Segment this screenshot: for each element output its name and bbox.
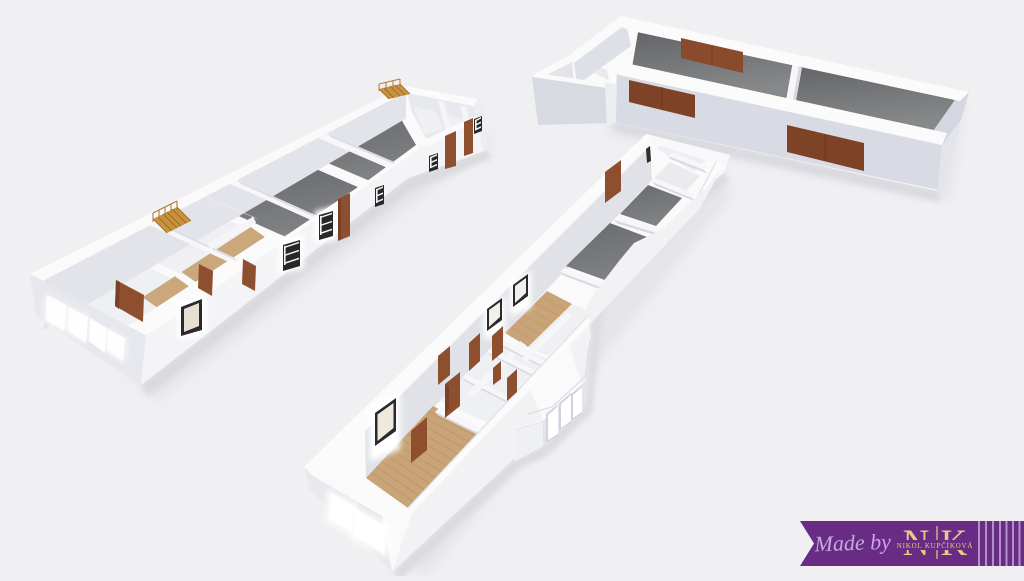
svg-text:Made by: Made by	[813, 529, 891, 557]
svg-text:NIKOL KUPČÍKOVÁ: NIKOL KUPČÍKOVÁ	[897, 542, 974, 550]
